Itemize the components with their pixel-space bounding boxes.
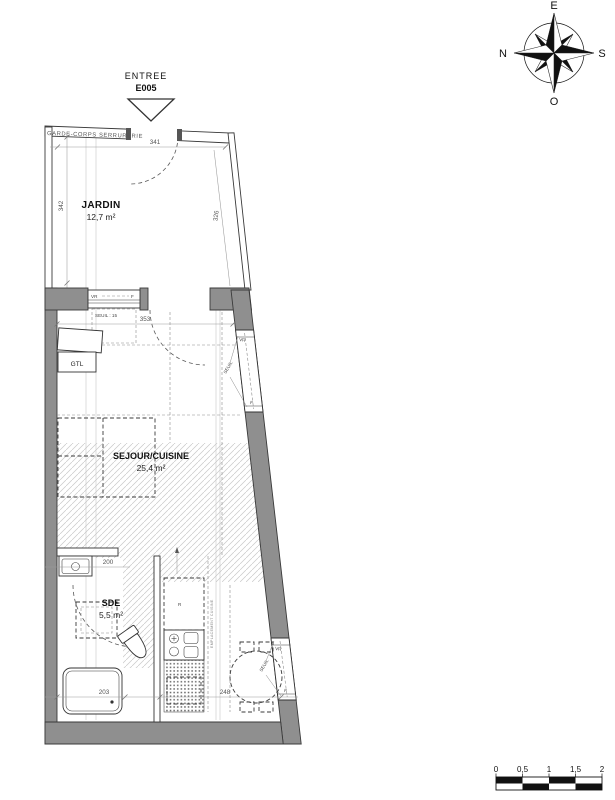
jardin-zone: GARDE-CORPS SERRURERIE JARDIN 12,7 m² 34… xyxy=(45,126,251,290)
window-north-frame xyxy=(88,290,140,308)
garde-corps-rail-right xyxy=(178,131,231,143)
scale-tick-0: 0 xyxy=(494,765,499,774)
dim-jardin-slant: 326 xyxy=(212,210,220,222)
window-north-vr-label: VR xyxy=(91,294,98,299)
dim-jardin-height: 342 xyxy=(58,200,65,211)
dining-chair xyxy=(240,702,254,712)
entrance-code: E005 xyxy=(135,83,156,93)
dim-dining: 248 xyxy=(220,689,231,696)
gtl-shelf xyxy=(57,328,102,353)
entrance-label: ENTREE xyxy=(125,71,168,81)
window-north-seuil-label: SEUIL : 15 xyxy=(95,313,117,318)
scale-tick-05: 0,5 xyxy=(517,765,529,774)
scale-bar: 0 0,5 1 1,5 2 xyxy=(494,765,605,790)
dim-jardin-width: 341 xyxy=(150,139,161,146)
fridge-dashed xyxy=(164,578,204,630)
jardin-area: 12,7 m² xyxy=(87,212,116,222)
gtl-unit: GTL xyxy=(57,328,102,372)
dining-chair xyxy=(259,642,273,652)
sde-name: SDE xyxy=(102,598,121,608)
window-east-lower: VR F SEUIL xyxy=(259,638,297,700)
scale-tick-1: 1 xyxy=(547,765,552,774)
entry-door-swing-arc xyxy=(150,310,205,365)
compass-south-label: S xyxy=(598,48,605,60)
scale-tick-15: 1,5 xyxy=(570,765,582,774)
window-east-upper: VR F SEUIL xyxy=(223,330,263,412)
sejour-area: 25,4 m² xyxy=(137,463,166,473)
fridge-label: R xyxy=(178,602,182,607)
wall-north-seg-a xyxy=(45,288,88,310)
window-north-f-label: F xyxy=(131,294,134,299)
window-east-upper-seuil: SEUIL xyxy=(223,360,234,374)
floor-plan-canvas: GARDE-CORPS SERRURERIE JARDIN 12,7 m² 34… xyxy=(0,0,615,800)
wall-south xyxy=(45,722,283,744)
hob-sink-unit xyxy=(164,630,204,660)
compass-north-label: N xyxy=(499,48,507,60)
gtl-label: GTL xyxy=(71,361,84,368)
compass-west-label: O xyxy=(550,96,559,108)
scale-tick-2: 2 xyxy=(600,765,605,774)
sde-area: 5,5 m² xyxy=(99,610,123,620)
jardin-rail-east-slanted xyxy=(228,133,251,290)
dim-sejour-width: 353 xyxy=(140,316,151,323)
sejour-name: SEJOUR/CUISINE xyxy=(113,451,189,461)
sde-wall-top xyxy=(57,548,118,556)
dining-chair xyxy=(259,702,273,712)
wall-west xyxy=(45,288,57,744)
window-east-lower-seuil: SEUIL xyxy=(259,658,270,672)
window-east-upper-frame xyxy=(236,330,263,412)
entrance-marker: ENTREE E005 xyxy=(125,71,174,121)
compass-east-label: E xyxy=(550,0,557,12)
entrance-arrow xyxy=(128,99,174,121)
washbasin xyxy=(59,556,92,576)
jardin-rail-west xyxy=(45,127,52,290)
shower-tray xyxy=(63,668,122,714)
dim-shower: 203 xyxy=(99,689,110,696)
wall-north-seg-b xyxy=(140,288,148,310)
jardin-name: JARDIN xyxy=(81,200,120,211)
seuil-leader xyxy=(230,336,238,363)
compass-rose: E N S O xyxy=(499,0,606,108)
dim-sde-door: 200 xyxy=(103,559,114,566)
dining-chair xyxy=(240,642,254,652)
floor-plan-page: GARDE-CORPS SERRURERIE JARDIN 12,7 m² 34… xyxy=(0,0,615,800)
kitchen-note: EMPLACEMENT CUISINE xyxy=(210,599,214,648)
